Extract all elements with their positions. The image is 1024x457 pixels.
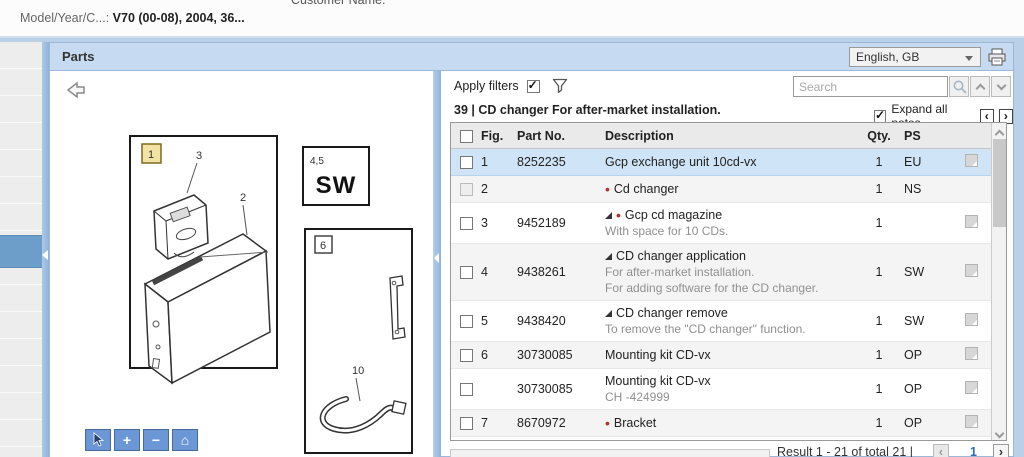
note-icon[interactable] <box>965 381 978 394</box>
table-row[interactable]: 2 • Cd changer 1 NS <box>451 176 991 203</box>
triangle-marker-icon <box>605 310 612 317</box>
top-header-band: Model/Year/C...: V70 (00-08), 2004, 36..… <box>0 0 1024 38</box>
description-cell: CD changer application For after-market … <box>605 249 854 295</box>
fig-cell: 7 <box>481 416 517 430</box>
back-arrow-icon[interactable] <box>68 83 84 97</box>
fig-cell: 5 <box>481 314 517 328</box>
note-icon[interactable] <box>965 264 978 277</box>
model-year-label: Model/Year/C...: <box>20 11 109 25</box>
description-cell: Mounting kit CD-vx CH -424999 <box>605 374 854 404</box>
table-row[interactable]: 4 9438261 CD changer application For aft… <box>451 244 991 301</box>
note-icon[interactable] <box>965 347 978 360</box>
fig-cell: 1 <box>481 155 517 169</box>
page-title: Parts <box>62 49 95 64</box>
description-text: Gcp exchange unit 10cd-vx <box>605 155 756 169</box>
sidebar-collapse-divider[interactable] <box>42 42 49 457</box>
ps-cell: SW <box>904 314 954 328</box>
search-next-button[interactable] <box>991 76 1011 97</box>
diagram-zoom-toolbar: + − ⌂ <box>85 429 198 451</box>
table-scrollbar[interactable] <box>991 123 1006 440</box>
select-all-checkbox[interactable] <box>460 130 473 143</box>
table-body: 1 8252235 Gcp exchange unit 10cd-vx 1 EU… <box>451 149 991 437</box>
description-cell: • Gcp cd magazine With space for 10 CDs. <box>605 208 854 238</box>
triangle-marker-icon <box>605 212 612 219</box>
part-note: With space for 10 CDs. <box>605 224 854 238</box>
description-text: Mounting kit CD-vx <box>605 348 711 362</box>
chevron-up-icon <box>995 130 1005 140</box>
current-page-number[interactable]: 1 <box>970 445 977 457</box>
description-cell: • Bracket <box>605 416 854 430</box>
filter-row: Apply filters <box>454 78 568 94</box>
ps-cell: SW <box>904 265 954 279</box>
part-no-cell: 8670972 <box>517 416 605 430</box>
notes-block: CH -424999 <box>605 390 854 404</box>
callout-10[interactable]: 10 <box>352 365 364 377</box>
parts-diagram-pane: 1 3 2 <box>50 71 433 457</box>
search-input[interactable] <box>793 76 948 97</box>
col-fig: Fig. <box>481 129 517 143</box>
chevron-down-icon <box>965 56 973 61</box>
sidebar-selected-item[interactable] <box>0 235 42 268</box>
table-row[interactable]: 6 30730085 Mounting kit CD-vx 1 OP <box>451 342 991 369</box>
table-row[interactable]: 1 8252235 Gcp exchange unit 10cd-vx 1 EU <box>451 149 991 176</box>
triangle-marker-icon <box>605 253 612 260</box>
qty-cell: 1 <box>854 182 904 196</box>
description-text: Bracket <box>614 416 656 430</box>
part-no-cell: 9438420 <box>517 314 605 328</box>
col-description: Description <box>605 129 854 143</box>
table-header-row: Fig. Part No. Description Qty. PS <box>451 123 991 149</box>
search-prev-button[interactable] <box>970 76 990 97</box>
row-checkbox[interactable] <box>460 217 473 230</box>
part-no-cell: 30730085 <box>517 348 605 362</box>
ps-cell: NS <box>904 182 954 196</box>
table-row[interactable]: 5 9438420 CD changer remove To remove th… <box>451 301 991 342</box>
pagination-bar: Result 1 - 21 of total 21 | ‹ 1 › <box>441 444 1013 457</box>
panel-splitter[interactable] <box>433 71 441 457</box>
col-qty: Qty. <box>854 129 904 143</box>
part-note: For after-market installation. <box>605 265 854 279</box>
bullet-icon: • <box>605 418 610 428</box>
col-ps: PS <box>904 129 954 143</box>
callout-6[interactable]: 6 <box>315 236 332 253</box>
description-text: Cd changer <box>614 182 679 196</box>
main-panel: Parts English, GB <box>49 42 1014 457</box>
col-part-no: Part No. <box>517 129 605 143</box>
parts-title-bar: Parts English, GB <box>50 43 1013 71</box>
result-count-text: Result 1 - 21 of total 21 | <box>777 445 913 457</box>
page-prev-button[interactable]: ‹ <box>933 444 949 457</box>
part-no-cell: 8252235 <box>517 155 605 169</box>
magnifier-icon <box>952 79 968 95</box>
fig-cell: 2 <box>481 182 517 196</box>
table-row[interactable]: 30730085 Mounting kit CD-vx CH -424999 1… <box>451 369 991 410</box>
qty-cell: 1 <box>854 265 904 279</box>
parts-list-pane: Apply filters <box>441 71 1013 456</box>
callout-1-highlight[interactable]: 1 <box>142 144 161 163</box>
ps-cell: OP <box>904 348 954 362</box>
qty-cell: 1 <box>854 155 904 169</box>
expand-notes-checkbox[interactable] <box>874 110 886 123</box>
pointer-tool-button[interactable] <box>85 429 111 451</box>
table-row[interactable]: 7 8670972 • Bracket 1 OP <box>451 410 991 437</box>
home-view-button[interactable]: ⌂ <box>172 429 198 451</box>
qty-cell: 1 <box>854 348 904 362</box>
row-checkbox[interactable] <box>460 183 473 196</box>
ps-cell: OP <box>904 416 954 430</box>
part-note: CH -424999 <box>605 390 854 404</box>
zoom-out-button[interactable]: − <box>143 429 169 451</box>
part-note: For adding software for the CD changer. <box>605 281 854 295</box>
notes-block: With space for 10 CDs. <box>605 224 854 238</box>
language-select[interactable]: English, GB <box>849 47 981 67</box>
note-icon[interactable] <box>965 215 978 228</box>
description-cell: CD changer remove To remove the "CD chan… <box>605 306 854 336</box>
chevron-up-icon <box>976 84 986 94</box>
collapse-left-icon <box>42 250 48 260</box>
chevron-down-icon <box>995 429 1005 439</box>
note-icon[interactable] <box>965 154 978 167</box>
note-icon[interactable] <box>965 313 978 326</box>
part-no-cell: 9452189 <box>517 216 605 230</box>
model-year-value: V70 (00-08), 2004, 36... <box>113 11 245 25</box>
part-no-cell: 30730085 <box>517 382 605 396</box>
row-checkbox[interactable] <box>460 349 473 362</box>
svg-text:SW: SW <box>316 172 357 199</box>
parts-table: Fig. Part No. Description Qty. PS 1 8252… <box>450 122 1007 441</box>
row-checkbox[interactable] <box>460 417 473 430</box>
scroll-up-button[interactable] <box>992 123 1007 138</box>
page-next-button[interactable]: › <box>993 444 1009 457</box>
model-year-field: Model/Year/C...: V70 (00-08), 2004, 36..… <box>20 11 245 25</box>
zoom-in-button[interactable]: + <box>114 429 140 451</box>
table-row[interactable]: 3 9452189 • Gcp cd magazine With space f… <box>451 203 991 244</box>
svg-text:1: 1 <box>148 149 154 161</box>
part-no-cell: 9438261 <box>517 265 605 279</box>
left-navigation-sidebar[interactable] <box>0 42 42 457</box>
description-cell: Gcp exchange unit 10cd-vx <box>605 155 854 169</box>
row-checkbox[interactable] <box>460 156 473 169</box>
notes-block: For after-market installation.For adding… <box>605 265 854 295</box>
customer-name-label: Customer Name: <box>291 0 385 7</box>
ps-cell: OP <box>904 382 954 396</box>
fig-cell: 6 <box>481 348 517 362</box>
content-area: 1 3 2 <box>50 71 1013 456</box>
svg-text:4,5: 4,5 <box>310 156 324 167</box>
row-checkbox[interactable] <box>460 315 473 328</box>
description-cell: Mounting kit CD-vx <box>605 348 854 362</box>
filter-funnel-icon[interactable] <box>552 78 568 94</box>
language-value: English, GB <box>856 50 919 64</box>
section-title: 39 | CD changer For after-market install… <box>454 103 721 117</box>
printer-icon <box>987 47 1007 67</box>
print-button[interactable] <box>987 47 1007 67</box>
search-button[interactable] <box>949 76 969 97</box>
fig-cell: 4 <box>481 265 517 279</box>
part-note: To remove the "CD changer" function. <box>605 322 854 336</box>
cursor-icon <box>91 432 105 448</box>
description-text: CD changer application <box>616 249 746 263</box>
description-cell: • Cd changer <box>605 182 854 196</box>
parts-catalog-app: Model/Year/C...: V70 (00-08), 2004, 36..… <box>0 0 1024 457</box>
description-text: CD changer remove <box>616 306 728 320</box>
qty-cell: 1 <box>854 216 904 230</box>
chevron-down-icon <box>997 81 1007 91</box>
fig-cell: 3 <box>481 216 517 230</box>
search-cluster <box>793 76 1011 97</box>
apply-filters-checkbox[interactable] <box>527 80 540 93</box>
qty-cell: 1 <box>854 382 904 396</box>
description-text: Gcp cd magazine <box>625 208 722 222</box>
callout-2[interactable]: 2 <box>240 192 246 204</box>
bullet-icon: • <box>605 184 610 194</box>
note-icon[interactable] <box>965 415 978 428</box>
apply-filters-label: Apply filters <box>454 79 519 93</box>
scrollbar-thumb[interactable] <box>993 139 1006 227</box>
row-checkbox[interactable] <box>460 266 473 279</box>
svg-text:6: 6 <box>320 240 326 252</box>
scroll-down-button[interactable] <box>992 425 1007 440</box>
notes-block: To remove the "CD changer" function. <box>605 322 854 336</box>
qty-cell: 1 <box>854 416 904 430</box>
qty-cell: 1 <box>854 314 904 328</box>
sw-software-box: 4,5 SW <box>303 147 369 205</box>
bullet-icon: • <box>616 210 621 220</box>
row-checkbox[interactable] <box>460 383 473 396</box>
description-text: Mounting kit CD-vx <box>605 374 711 388</box>
collapse-left-icon <box>434 253 439 263</box>
callout-3[interactable]: 3 <box>196 150 202 162</box>
ps-cell: EU <box>904 155 954 169</box>
